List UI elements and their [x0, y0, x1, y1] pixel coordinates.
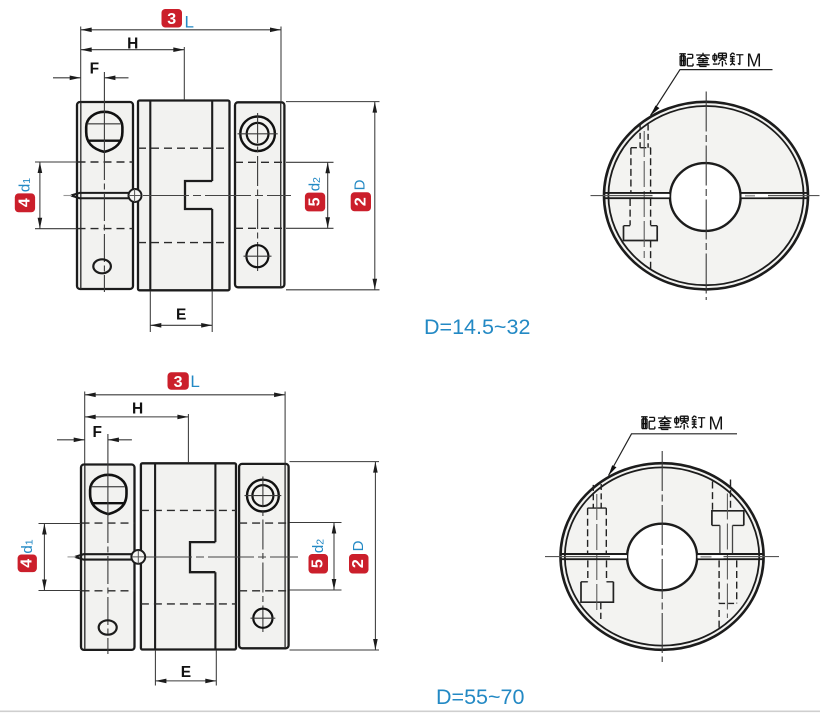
svg-text:M: M: [709, 414, 724, 434]
svg-text:H: H: [127, 35, 138, 52]
svg-text:D=14.5~32: D=14.5~32: [424, 315, 530, 339]
svg-text:4: 4: [19, 559, 36, 568]
svg-text:F: F: [92, 424, 101, 441]
svg-text:M: M: [747, 51, 762, 71]
svg-text:2: 2: [350, 559, 367, 568]
svg-text:F: F: [90, 61, 99, 78]
svg-text:D: D: [351, 179, 368, 190]
svg-text:D=55~70: D=55~70: [436, 685, 525, 709]
svg-text:E: E: [181, 664, 191, 681]
svg-text:3: 3: [174, 374, 183, 391]
svg-text:E: E: [176, 307, 186, 324]
svg-text:5: 5: [310, 559, 327, 568]
svg-text:L: L: [190, 372, 199, 391]
svg-text:4: 4: [16, 198, 33, 207]
svg-text:3: 3: [167, 11, 176, 28]
svg-text:D: D: [350, 540, 367, 551]
svg-text:5: 5: [307, 197, 324, 206]
svg-text:2: 2: [352, 197, 369, 206]
svg-text:H: H: [132, 401, 143, 418]
svg-text:L: L: [185, 12, 194, 31]
